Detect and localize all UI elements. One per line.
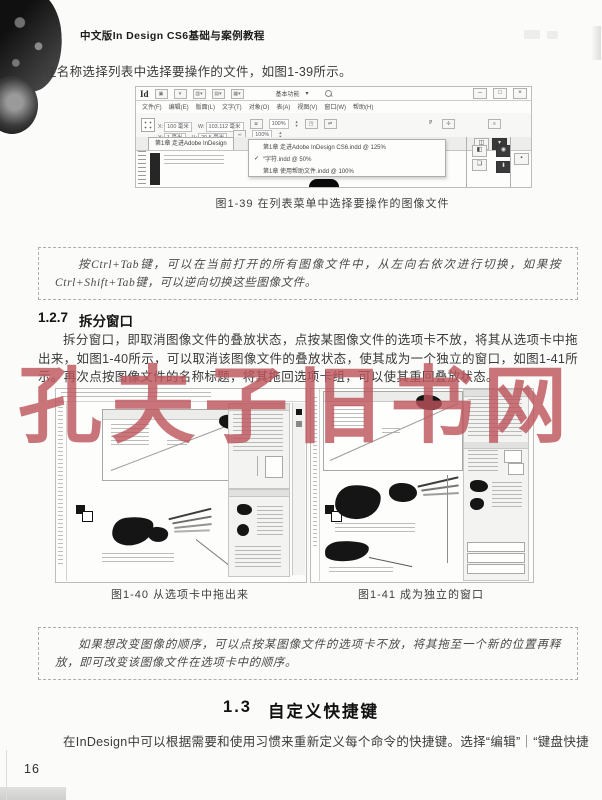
swatches-panel-icon[interactable]: ◉ (496, 145, 511, 157)
intro-paragraph: 性名称选择列表中选择要操作的文件，如图1-39所示。 (44, 63, 566, 82)
column-divider (447, 475, 448, 563)
dock-icon (296, 421, 302, 427)
page-number: 16 (24, 762, 40, 776)
paragraph-split-window: 拆分窗口，即取消图像文件的叠放状态，点按某图像文件的选项卡不放，将其从选项卡中拖… (38, 331, 578, 387)
image-blob (334, 483, 383, 521)
paragraph-shortcuts: 在InDesign中可以根据需要和使用习惯来重新定义每个命令的快捷键。选择“编辑… (38, 733, 594, 752)
mini-toolstrip (56, 401, 67, 581)
figure-1-39-caption: 图1-39 在列表菜单中选择要操作的图像文件 (135, 195, 530, 211)
scan-smudge (524, 30, 540, 39)
menu-help[interactable]: 帮助(H) (353, 102, 373, 111)
page-text-lines (331, 405, 365, 429)
chevron-down-icon: ▾ (306, 90, 309, 97)
layers-panel-icon[interactable]: ❏ (472, 159, 487, 171)
panel-thumb-frame (504, 450, 522, 463)
scan-edge-mark (591, 26, 601, 60)
panel-field[interactable] (467, 564, 525, 574)
view-options-icon[interactable]: ▥▾ (193, 89, 206, 99)
running-header-title: 中文版In Design CS6基础与案例教程 (80, 28, 265, 43)
image-blob (389, 483, 417, 502)
panel-header (229, 404, 289, 411)
p-cursor-mark: P (429, 120, 432, 126)
tab-list-item[interactable]: 第1章 使用帮助文件.indd @ 100% (249, 164, 445, 176)
tab-list-item-label: 第1章 走进Adobe InDesign CS6.indd @ 125% (263, 142, 386, 151)
panel-thumb-blob (237, 504, 252, 515)
panel-header (464, 390, 528, 397)
rotate-icon[interactable]: ◳ (305, 119, 318, 129)
tip-box-reorder-tabs: 如果想改变图像的顺序，可以点按某图像文件的选项卡不放，将其拖至一个新的位置再释放… (38, 627, 578, 680)
tab-list-item[interactable]: 第1章 走进Adobe InDesign CS6.indd @ 125% (249, 140, 445, 152)
caption-text-lines (382, 428, 400, 433)
tab-list-menu: 第1章 走进Adobe InDesign CS6.indd @ 125% ✓ “… (248, 139, 446, 177)
zoom-level-dropdown[interactable]: ▾ (174, 89, 187, 99)
flip-icon[interactable]: ⇄ (324, 119, 337, 129)
document-text-lines (164, 155, 224, 167)
image-blob (147, 525, 169, 543)
caption-text-lines (167, 440, 187, 445)
indesign-menubar: 文件(F) 编辑(E) 版面(L) 文字(T) 对象(O) 表(A) 视图(V)… (142, 102, 373, 111)
image-blob (324, 539, 369, 562)
menu-window[interactable]: 窗口(W) (324, 102, 346, 111)
minimize-button[interactable]: ─ (473, 88, 487, 99)
menu-layout[interactable]: 版面(L) (196, 102, 215, 111)
stroke-panel-icon[interactable]: ▪ (514, 153, 529, 165)
mini-toolstrip (311, 389, 320, 581)
menu-table[interactable]: 表(A) (276, 102, 290, 111)
indesign-control-panel: X:100 毫米 W:103.112 毫米 ⧈ 100% ▲▼ ◳ ⇄ Y:1 … (136, 113, 531, 138)
scan-bottom-shadow (0, 787, 66, 800)
panel-thumb-blob (470, 498, 484, 510)
swatches-panel[interactable] (228, 489, 290, 577)
reference-point-icon[interactable] (141, 118, 155, 132)
panel-text-lines (492, 482, 522, 508)
diagonal-rule (369, 557, 412, 567)
figure-1-40-screenshot (55, 388, 307, 583)
section-title: 拆分窗口 (79, 310, 133, 330)
panel-text-lines (257, 506, 283, 538)
arrange-documents-icon[interactable]: ▦▾ (231, 89, 244, 99)
scan-smudge (547, 31, 558, 39)
panel-thumb-frame (508, 463, 524, 475)
panel-divider (466, 137, 467, 187)
checkmark-icon: ✓ (254, 155, 260, 162)
independent-document-window[interactable] (323, 391, 463, 471)
stepper-icon[interactable]: ▲▼ (295, 120, 299, 128)
indesign-logo: Id (140, 89, 149, 99)
section-heading-13: 1.3 自定义快捷键 (0, 698, 602, 722)
toolbar-text-lines (61, 392, 211, 398)
menu-view[interactable]: 视图(V) (297, 102, 317, 111)
bridge-icon[interactable]: ▣ (155, 89, 168, 99)
layers-list-lines (468, 399, 522, 439)
feather-stroke (174, 529, 210, 532)
tip-box-ctrl-tab: 按Ctrl+Tab键，可以在当前打开的所有图像文件中，从左向右依次进行切换，如果… (38, 247, 578, 300)
more-options-icon[interactable]: ≡ (488, 119, 501, 129)
panel-thumb-blob (470, 480, 488, 492)
figure-1-41-screenshot (310, 388, 534, 583)
panel-divider (257, 456, 258, 476)
body-text-lines (335, 523, 415, 535)
panel-field[interactable] (467, 553, 525, 563)
workspace-switcher[interactable]: 基本功能 (276, 89, 300, 98)
tool-icons-column (58, 407, 63, 567)
menu-file[interactable]: 文件(F) (142, 102, 162, 111)
figure-1-40-caption: 图1-40 从选项卡中拖出来 (55, 586, 305, 602)
panel-text-lines (233, 414, 283, 452)
mini-toolbar (56, 389, 306, 402)
panel-text-lines (468, 450, 498, 472)
pages-panel-icon[interactable]: ◧ (472, 145, 487, 157)
links-panel-icon[interactable]: ⬇ (496, 161, 511, 173)
panel-header (464, 442, 528, 449)
menu-type[interactable]: 文字(T) (222, 102, 242, 111)
tab-list-item-label: “字符.indd @ 50% (263, 154, 311, 163)
panel-text-lines (235, 546, 281, 568)
tab-list-item-label: 第1章 使用帮助文件.indd @ 100% (263, 166, 354, 175)
section-title: 自定义快捷键 (268, 698, 379, 722)
menu-object[interactable]: 对象(O) (249, 102, 270, 111)
page-thumbnail (265, 456, 283, 478)
panel-field[interactable] (467, 542, 525, 552)
panel-header (229, 490, 289, 497)
panel-divider (510, 137, 511, 187)
document-tab-label: 第1章 走进Adobe InDesign (155, 141, 227, 147)
panel-thumb-blob (237, 524, 249, 536)
panel-options-icon[interactable]: ✣ (442, 119, 455, 129)
feather-stroke (174, 523, 212, 529)
footer-text-lines (329, 567, 393, 573)
document-tab[interactable]: 第1章 走进Adobe InDesign (148, 137, 234, 150)
tool-icon-frame (82, 511, 93, 522)
layers-panel[interactable] (463, 389, 529, 581)
section-number: 1.3 (223, 698, 252, 722)
figure-1-39-screenshot: Id ▣ ▾ ▥▾ ▤▾ ▦▾ 基本功能 ▾ ─ □ × 文件(F) 编辑(E)… (135, 86, 532, 188)
tool-icons-column (313, 397, 317, 547)
dock-icon (296, 409, 302, 415)
document-page-edge (150, 153, 160, 185)
search-icon[interactable] (325, 90, 332, 97)
section-number: 1.2.7 (38, 310, 68, 330)
feather-stroke (423, 492, 459, 496)
maximize-button[interactable]: □ (493, 88, 507, 99)
indesign-titlebar: Id ▣ ▾ ▥▾ ▤▾ ▦▾ 基本功能 ▾ ─ □ × (136, 87, 531, 101)
footer-text-lines (102, 553, 174, 563)
pages-panel[interactable] (228, 403, 290, 489)
tab-list-item[interactable]: ✓ “字符.indd @ 50% (249, 152, 445, 164)
screen-mode-icon[interactable]: ▤▾ (212, 89, 225, 99)
section-heading-127: 1.2.7 拆分窗口 (38, 310, 133, 330)
close-button[interactable]: × (513, 88, 527, 99)
figure-1-41-caption: 图1-41 成为独立的窗口 (310, 586, 532, 602)
scan-ink-blob (309, 179, 339, 187)
page-text-lines (111, 424, 149, 446)
tools-column (138, 151, 146, 185)
scan-left-edge (6, 750, 7, 800)
panel-dock-strip (292, 403, 305, 575)
menu-edit[interactable]: 编辑(E) (169, 102, 189, 111)
book-page: 中文版In Design CS6基础与案例教程 性名称选择列表中选择要操作的文件… (0, 0, 602, 800)
